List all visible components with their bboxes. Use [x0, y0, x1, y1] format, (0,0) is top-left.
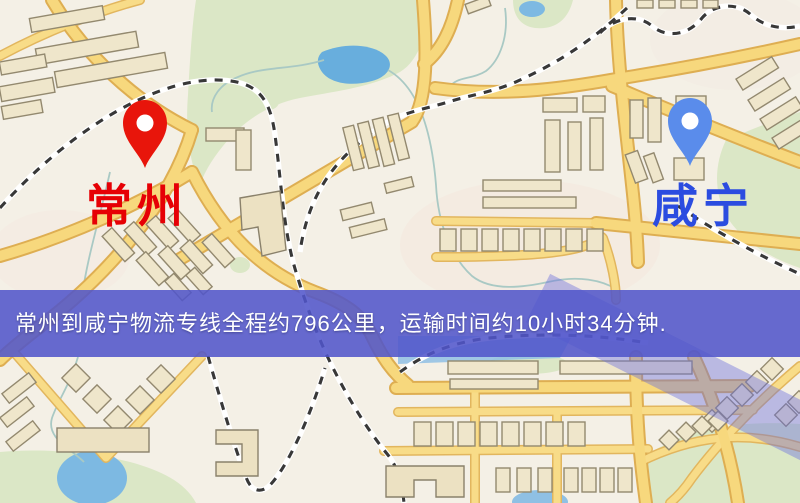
destination-city-label: 咸宁 [652, 181, 754, 232]
map-screenshot: 常州 咸宁 常州到咸宁物流专线全程约796公里，运输时间约10小时34分钟. [0, 0, 800, 503]
route-info-banner: 常州到咸宁物流专线全程约796公里，运输时间约10小时34分钟. [0, 290, 800, 357]
origin-city-label: 常州 [86, 181, 188, 232]
destination-pin-hole [682, 113, 699, 130]
origin-pin-hole [137, 115, 154, 132]
route-info-text: 常州到咸宁物流专线全程约796公里，运输时间约10小时34分钟. [15, 313, 667, 335]
map-canvas[interactable]: 常州 咸宁 [0, 0, 800, 503]
